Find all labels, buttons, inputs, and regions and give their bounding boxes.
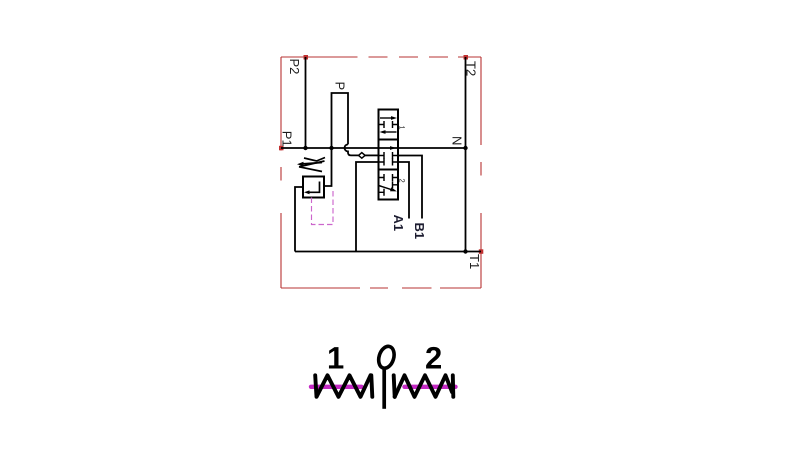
svg-text:P1: P1 — [280, 131, 295, 147]
svg-text:N: N — [450, 136, 465, 145]
svg-text:2: 2 — [398, 179, 407, 183]
svg-text:P: P — [333, 82, 348, 91]
svg-text:T1: T1 — [467, 254, 482, 269]
svg-text:2: 2 — [425, 341, 442, 376]
svg-text:1: 1 — [398, 126, 407, 130]
svg-text:T2: T2 — [464, 61, 479, 76]
svg-text:B1: B1 — [412, 223, 427, 240]
svg-text:P2: P2 — [287, 59, 302, 75]
svg-text:A1: A1 — [391, 215, 406, 232]
svg-text:1: 1 — [327, 341, 344, 376]
